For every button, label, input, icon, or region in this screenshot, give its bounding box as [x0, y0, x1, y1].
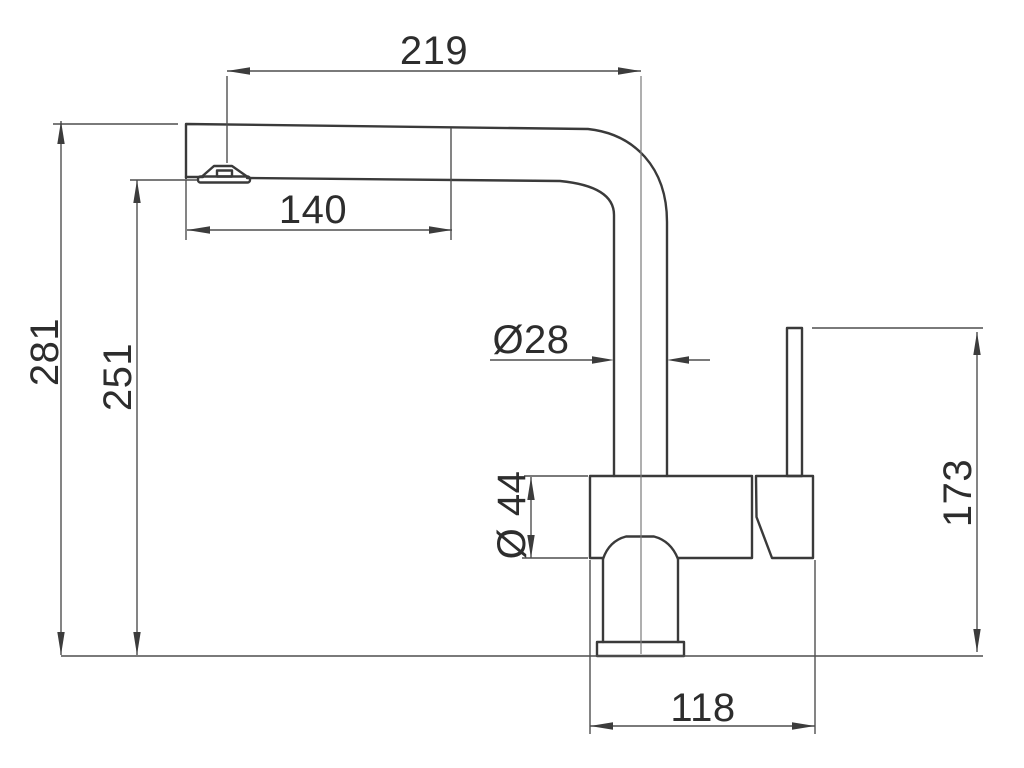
arrowhead-right [667, 356, 689, 363]
arrowhead-right [618, 67, 641, 74]
dim-spout-reach: 219 [227, 29, 641, 163]
dim-tube-diameter-label: Ø28 [492, 318, 569, 362]
arrowhead-left [592, 356, 614, 363]
arrowhead-right [792, 722, 815, 729]
arrowhead-top [973, 332, 980, 355]
arrowhead-right [429, 226, 452, 233]
dim-base-depth-label: 118 [670, 686, 735, 730]
arrowhead-bottom [133, 632, 140, 655]
handle-lever [787, 328, 802, 476]
arrowhead-top [133, 180, 140, 203]
dim-outlet-height-label: 251 [96, 343, 140, 411]
dim-spray-head-length-label: 140 [279, 188, 347, 232]
dim-base-depth: 118 [590, 560, 815, 734]
dim-spout-reach-label: 219 [400, 29, 468, 73]
arrowhead-bottom [57, 632, 64, 655]
arrowhead-left [227, 67, 250, 74]
dim-body-diameter: Ø 44 [490, 471, 588, 560]
dim-lever-height-label: 173 [936, 459, 980, 527]
dim-outlet-height: 251 [96, 180, 197, 655]
arrowhead-left [590, 722, 613, 729]
arrowhead-left [187, 226, 210, 233]
faucet-dimension-drawing: 219 140 Ø28 Ø 44 [0, 0, 1024, 768]
arrowhead-bottom [973, 629, 980, 652]
dim-lever-height: 173 [812, 328, 983, 652]
dim-spray-head-length: 140 [186, 128, 452, 240]
spout-outer-contour [186, 124, 667, 476]
handle-base [756, 476, 813, 558]
aerator-notch [217, 171, 232, 177]
dim-overall-height-label: 281 [23, 318, 67, 386]
dim-body-diameter-label: Ø 44 [490, 471, 534, 560]
dim-tube-diameter: Ø28 [490, 318, 710, 364]
drawing-canvas: 219 140 Ø28 Ø 44 [0, 0, 1024, 768]
